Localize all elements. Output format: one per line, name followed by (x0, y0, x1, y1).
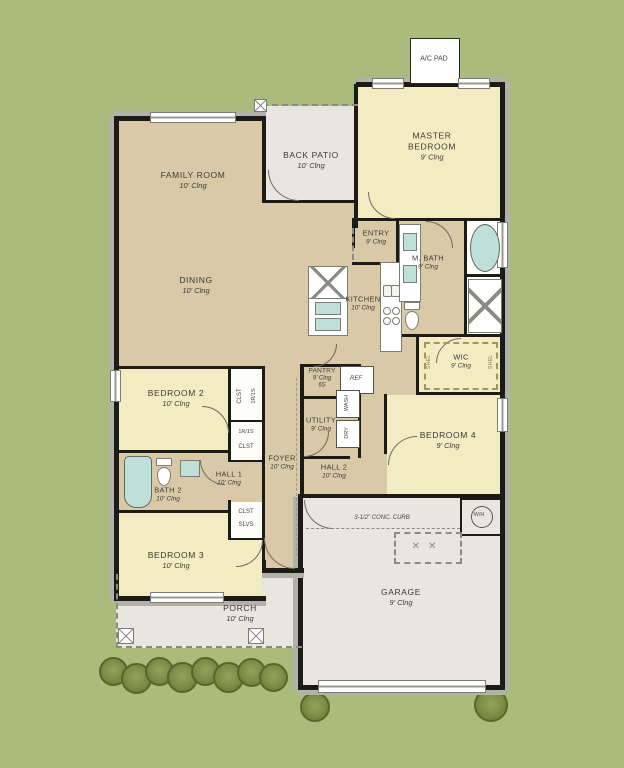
room-label-bath-2: BATH 2 10' Clng (154, 486, 182, 503)
attic-access-icon: ✕✕ (394, 532, 462, 564)
room-label-kitchen: KITCHEN 10' Clng (345, 295, 380, 312)
window (372, 78, 404, 89)
window (497, 398, 508, 432)
closet-label: CLST (238, 444, 253, 450)
garage-door (318, 680, 486, 693)
range-burner-icon (383, 317, 391, 325)
room-label-foyer: FOYER 10' Clng (268, 454, 295, 471)
wall (416, 392, 504, 395)
toilet-bowl (157, 467, 171, 486)
shower-icon (468, 279, 502, 333)
closet-label: CLST (237, 388, 243, 403)
entry-open-edge (352, 228, 354, 260)
wash-label: WASH (344, 395, 350, 411)
window (150, 592, 224, 603)
room-label-dining: DINING 10' Clng (179, 275, 212, 295)
room-label-bedroom-3: BEDROOM 3 10' Clng (148, 550, 204, 570)
window (150, 112, 236, 123)
room-label-porch: PORCH 10' Clng (223, 603, 257, 623)
wall (228, 366, 231, 462)
wall (228, 420, 264, 422)
kitchen-island (308, 298, 348, 336)
wall (464, 220, 467, 334)
wall (396, 334, 504, 337)
rod-shelf-label: 1R/1S (251, 388, 257, 403)
water-heater-label: W/H (474, 512, 485, 518)
closet-fill-3 (228, 502, 262, 538)
wall (464, 274, 504, 277)
bush-icon (300, 692, 330, 722)
bush-icon (474, 688, 508, 722)
room-label-bedroom-4: BEDROOM 4 9' Clng (420, 430, 476, 450)
ref-label: REF (350, 376, 362, 382)
room-label-pantry: PANTRY 9' Clng 6S (309, 368, 336, 389)
range-burner-icon (383, 307, 391, 315)
bush-icon (259, 663, 288, 692)
room-label-back-patio: BACK PATIO 10' Clng (283, 150, 339, 170)
room-label-hall-2: HALL 2 10' Clng (321, 463, 348, 480)
room-label-master-bedroom: MASTER BEDROOM 9' Clng (393, 130, 471, 161)
toilet-icon (404, 302, 420, 330)
shelf-label: SHEL (488, 355, 494, 369)
toilet-tank (404, 302, 420, 310)
wall (300, 364, 304, 497)
shelves-label: SLVS (239, 522, 254, 528)
wall (114, 510, 231, 513)
toilet-bowl (405, 311, 419, 330)
shelf-label: SHEL (426, 355, 432, 369)
wall (114, 116, 119, 601)
wall (416, 336, 419, 394)
window (458, 78, 490, 89)
wall (384, 394, 387, 454)
rod-shelf-label: 1R/1S (238, 429, 253, 435)
ac-pad-label: A/C PAD (419, 56, 449, 63)
room-label-family-room: FAMILY ROOM 10' Clng (161, 170, 226, 190)
room-label-garage: GARAGE 9' Clng (381, 587, 421, 607)
wall (500, 82, 505, 690)
vanity-sink-icon (403, 233, 417, 251)
range-burner-icon (392, 307, 400, 315)
porch-open-edge-front (116, 646, 302, 648)
wall (114, 366, 264, 369)
room-label-hall-1: HALL 1 10' Clng (216, 470, 243, 487)
range-burner-icon (392, 317, 400, 325)
patio-column-icon (254, 99, 267, 112)
curb-line (306, 528, 460, 529)
room-label-wic: WIC 9' Clng (451, 353, 471, 370)
floor-plan: ✕✕ FAMILY ROOM 10' Clng BACK PATIO 10' C… (0, 0, 624, 768)
wall (228, 500, 231, 540)
foyer-dashed-line (296, 378, 297, 556)
dry-label: DRY (344, 427, 350, 439)
wall (298, 497, 303, 690)
window (110, 370, 121, 402)
island-cooktop-icon (308, 266, 348, 300)
toilet-icon (156, 458, 172, 486)
conc-curb-label: 3-1/2" CONC. CURB (354, 515, 409, 521)
island-sink-icon (315, 318, 341, 331)
tub-icon (124, 456, 152, 508)
wall (228, 460, 264, 462)
wall (262, 118, 266, 202)
wall (262, 568, 304, 573)
closet-label: CLST (238, 509, 253, 515)
patio-open-edge (262, 104, 358, 106)
wall (114, 450, 231, 453)
room-label-bedroom-2: BEDROOM 2 10' Clng (148, 388, 204, 408)
tub-icon (470, 224, 500, 272)
porch-column-icon (248, 628, 264, 644)
toilet-tank (156, 458, 172, 466)
room-label-utility: UTILITY 9' Clng (306, 416, 336, 433)
room-label-entry: ENTRY 9' Clng (363, 229, 390, 246)
wall (262, 200, 358, 203)
sink-icon (180, 460, 200, 477)
room-label-master-bath: M. BATH 9' Clng (412, 254, 444, 271)
island-sink-icon (315, 302, 341, 315)
porch-column-icon (118, 628, 134, 644)
